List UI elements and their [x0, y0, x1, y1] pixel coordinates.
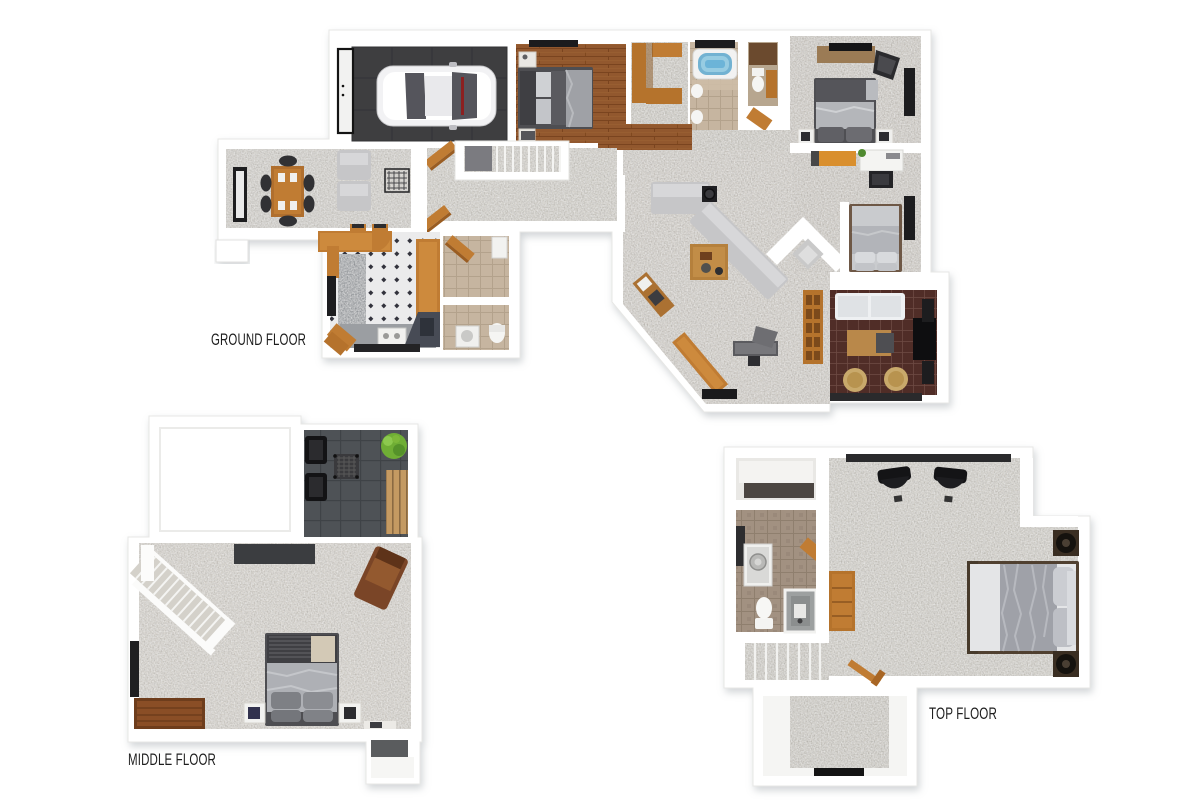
svg-text:TOP FLOOR: TOP FLOOR: [929, 705, 997, 723]
svg-text:MIDDLE FLOOR: MIDDLE FLOOR: [128, 751, 216, 769]
svg-text:GROUND FLOOR: GROUND FLOOR: [211, 331, 306, 349]
